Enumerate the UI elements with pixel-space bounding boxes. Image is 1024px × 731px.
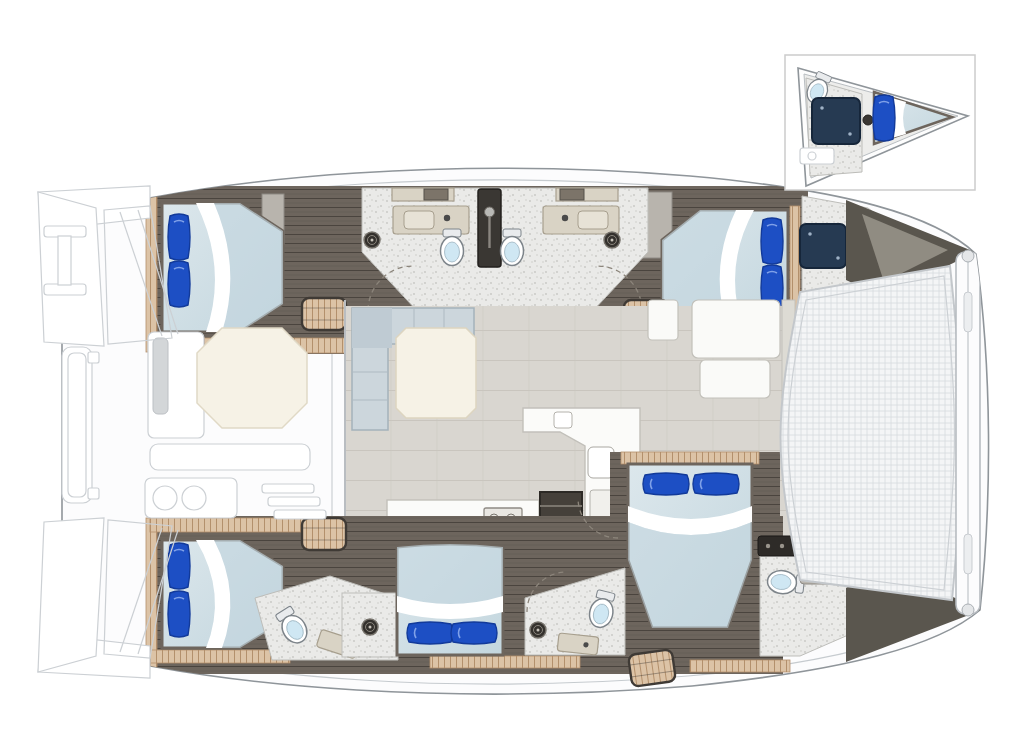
shower-drain xyxy=(530,622,546,638)
inset-knob xyxy=(863,115,873,125)
duvet xyxy=(397,544,503,605)
basin xyxy=(404,211,434,229)
helm-cushion xyxy=(153,338,168,414)
stbd-rail-2 xyxy=(150,650,290,663)
navy-hatch xyxy=(800,224,846,268)
trampoline xyxy=(781,266,963,600)
hatch-dog xyxy=(808,232,812,236)
owner-bed xyxy=(628,464,752,628)
stbd-rail-3 xyxy=(430,656,580,668)
foredeck xyxy=(781,250,981,616)
shower-drain xyxy=(362,619,378,635)
forepeak-inset xyxy=(785,55,975,190)
knob xyxy=(766,544,770,548)
faucet xyxy=(562,215,568,221)
pillow xyxy=(168,261,190,307)
cockpit-table xyxy=(197,328,307,428)
grill-unit xyxy=(145,478,237,518)
counter-item xyxy=(554,412,572,428)
beam-end xyxy=(962,250,974,262)
pillow xyxy=(168,591,190,637)
basin xyxy=(578,211,608,229)
toilet xyxy=(441,229,464,266)
port-heads xyxy=(362,188,648,314)
pillow xyxy=(873,95,895,141)
owner-stairs xyxy=(628,649,676,687)
shower-head xyxy=(485,207,495,217)
coffee-table xyxy=(396,328,476,418)
crossbeam xyxy=(956,250,980,616)
cockpit-bench xyxy=(150,444,310,470)
hatch-dog xyxy=(848,132,852,136)
duvet xyxy=(628,522,752,628)
pillow xyxy=(168,214,190,260)
pillow xyxy=(693,473,739,495)
vanity-sink xyxy=(557,633,599,655)
small-locker xyxy=(648,300,678,340)
pillow xyxy=(643,473,689,495)
salon-sofa xyxy=(352,308,476,430)
heads-locker xyxy=(424,189,448,200)
nav-seat xyxy=(700,360,770,398)
beam-fitting xyxy=(964,534,972,574)
stbd-rail-4 xyxy=(690,660,790,672)
port-aft-cabin-bed xyxy=(162,203,283,332)
heads-locker xyxy=(560,189,584,200)
knob xyxy=(780,544,784,548)
mid-cabin-bed xyxy=(397,544,503,655)
faucet xyxy=(444,215,450,221)
pillow xyxy=(761,218,783,264)
sofa-corner xyxy=(352,308,392,348)
port-aft-stairs xyxy=(302,298,346,330)
beam-fitting xyxy=(964,292,972,332)
catamaran-deck-plan xyxy=(0,0,1024,731)
pillow xyxy=(451,622,497,644)
beam-end xyxy=(962,604,974,616)
hatch-dog xyxy=(820,106,824,110)
shower-drain xyxy=(604,232,620,248)
inset-step xyxy=(800,148,834,164)
owner-headboard xyxy=(621,452,759,464)
shower-drain xyxy=(364,232,380,248)
hatch-dog xyxy=(836,256,840,260)
toilet xyxy=(501,229,524,266)
stbd-aft-stairs xyxy=(302,518,346,550)
floor-plan-canvas xyxy=(0,0,1024,731)
pillow xyxy=(407,622,453,644)
inset-navy-hatch xyxy=(812,98,860,144)
nav-cabinet xyxy=(692,300,780,358)
